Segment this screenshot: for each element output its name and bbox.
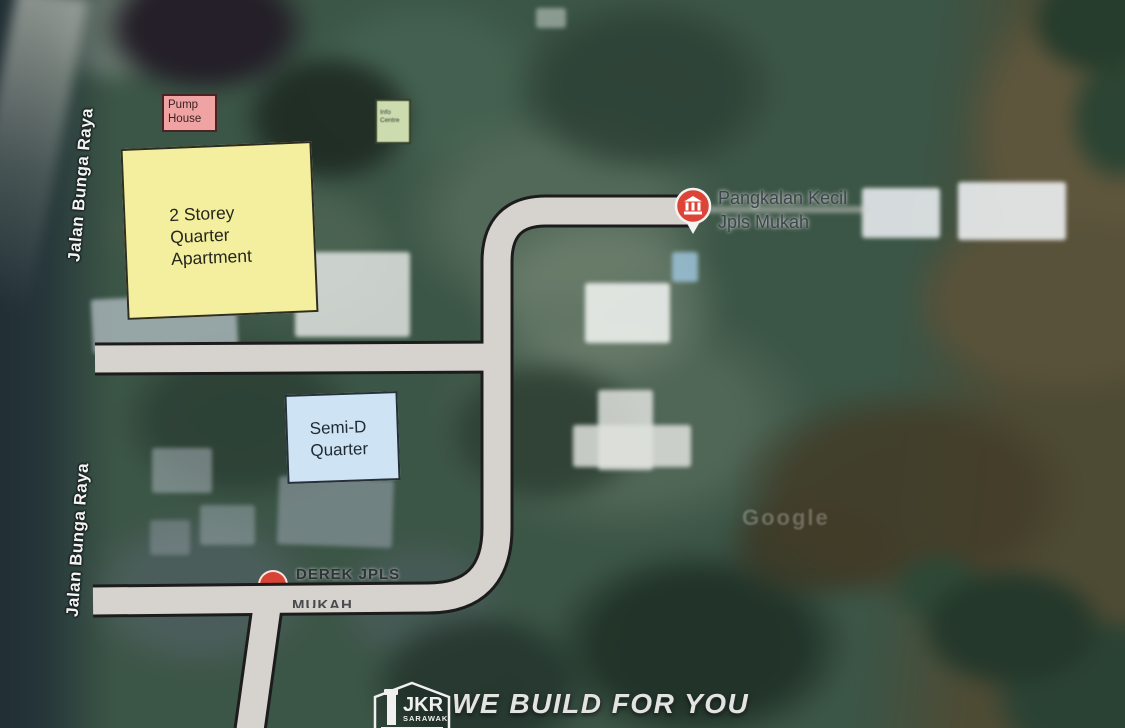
- jkr-logo-text: JKR: [403, 694, 444, 716]
- centre-label-line1: Info: [380, 109, 406, 117]
- pangkalan-label-line2: Jpls Mukah: [718, 210, 847, 234]
- centre-annotation: Info Centre: [375, 99, 411, 144]
- pump-house-annotation: Pump House: [162, 94, 217, 132]
- semid-label-line1: Semi-D: [309, 415, 387, 440]
- semid-label-line2: Quarter: [310, 437, 388, 462]
- apartment-annotation: 2 Storey Quarter Apartment: [121, 141, 319, 320]
- pangkalan-label: Pangkalan Kecil Jpls Mukah: [718, 186, 847, 234]
- centre-label-line2: Centre: [380, 117, 406, 125]
- slogan-text: WE BUILD FOR YOU: [452, 688, 749, 720]
- pump-house-label-line1: Pump: [168, 99, 211, 113]
- semid-annotation: Semi-D Quarter: [284, 391, 400, 484]
- derek-label-line2-fragment: MUKAH: [292, 597, 353, 608]
- apartment-label-line3: Apartment: [171, 242, 305, 270]
- pangkalan-map-pin[interactable]: [673, 186, 713, 241]
- poi-pin-icon: [673, 186, 713, 236]
- jkr-logo-subtext: SARAWAK: [403, 714, 448, 723]
- derek-label: DEREK JPLS: [296, 566, 400, 583]
- map-canvas: Google MUKAH DEREK JPLS: [0, 0, 1125, 728]
- jkr-logo: JKR SARAWAK: [372, 681, 452, 728]
- pump-house-label-line2: House: [168, 113, 211, 127]
- pangkalan-label-line1: Pangkalan Kecil: [718, 186, 847, 210]
